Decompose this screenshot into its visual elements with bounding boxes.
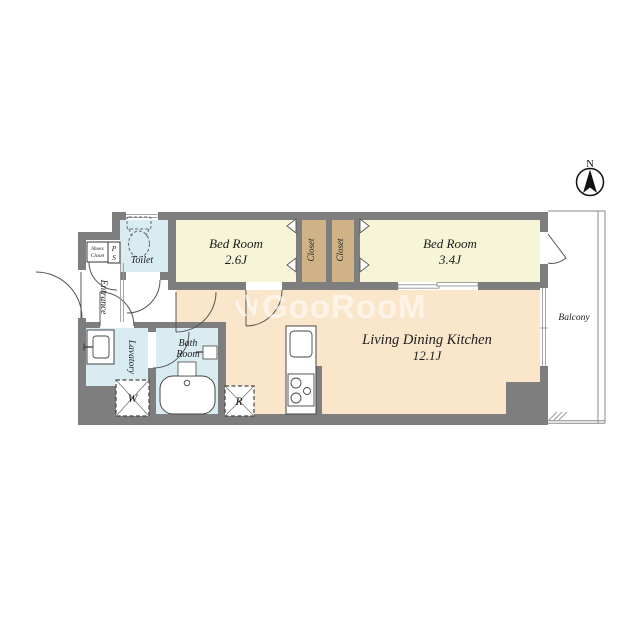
watermark-text: GooRooM [262,288,427,325]
fridge-label: R [234,396,242,408]
bath-faucet-unit [203,346,217,359]
wall-closet-right [354,212,360,290]
entrance-door-arc [36,272,82,318]
shoes-closet-label-line1: Shoes [91,246,104,252]
north-arrow-icon [583,170,597,194]
toilet-door-opening [126,272,160,280]
compass-icon: N [577,159,604,196]
sink-icon [84,330,114,364]
bedroom-1-size: 2.6J [225,252,248,267]
closet-1-label: Closet [306,238,316,262]
wall-closet-left [296,212,302,290]
bedroom-2-floor [360,218,540,284]
ldk-size: 12.1J [413,348,443,363]
pipe-space-label-p: P [111,244,117,253]
bath-label-line1: Bath [179,338,198,349]
shoes-closet-box [87,242,108,262]
washer-label: W [128,393,139,405]
watermark: GooRooM [237,288,427,325]
closet-2-label: Closet [335,238,345,262]
ldk-label: Living Dining Kitchen [361,332,492,348]
lavatory-door-opening [100,322,134,328]
toilet-door-arc [127,280,160,313]
bath-door-opening [148,332,156,368]
sliding-door-panel [437,283,478,286]
balcony-label: Balcony [558,313,590,323]
wall-left [78,232,86,418]
floor-plan: N Bed Room 2.6J Bed Room 3.4J Living Din… [0,0,640,640]
kitchen-counter [286,326,316,414]
toilet-window [126,212,158,220]
floor-plan-page: N Bed Room 2.6J Bed Room 3.4J Living Din… [0,0,640,640]
balcony-door-opening [540,232,548,264]
bedroom-2-label: Bed Room [423,236,477,251]
balcony-door-leaf [548,234,566,263]
bath-step [178,362,196,376]
kitchen-sink-icon [290,331,312,357]
entrance-label: Entrance [98,279,108,315]
wall-notch-block [506,382,548,414]
lavatory-label: Lavatory [126,339,136,375]
toilet-label: Toilet [131,255,154,266]
bathtub [160,376,215,414]
north-label: N [586,159,594,170]
bedroom-1-label: Bed Room [209,236,263,251]
ldk-window [540,288,548,366]
wall-closet-divider [326,212,332,290]
bedroom-1-floor [176,218,296,284]
pipe-space-label-s: S [112,253,116,262]
bath-label-line2: Room [175,349,199,360]
shoes-closet-label-line2: Closet [91,253,105,259]
entrance-door-opening [78,270,86,318]
bedroom-2-size: 3.4J [438,252,462,267]
wall-kitchen-stub [316,366,322,414]
